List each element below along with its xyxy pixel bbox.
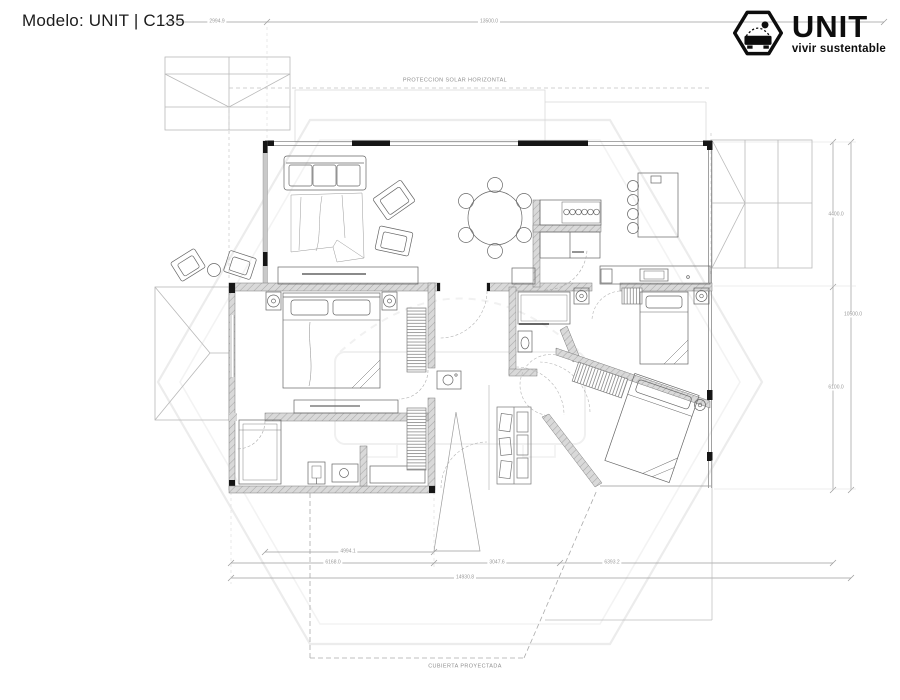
shower	[518, 292, 570, 324]
tall-cabinet	[512, 268, 535, 284]
unit-logo: UNIT vivir sustentable	[732, 10, 886, 56]
dining-area	[459, 178, 532, 259]
sink-counter	[600, 266, 710, 284]
leaf-icon	[761, 21, 768, 28]
bed-double	[283, 293, 380, 388]
kitchen	[512, 173, 710, 290]
page-title: Modelo: UNIT | C135	[22, 11, 185, 31]
kitchen-cabinets	[540, 232, 600, 258]
hall-door-arcs	[440, 291, 620, 488]
wardrobe	[622, 288, 642, 304]
vanity-sink	[437, 371, 461, 389]
dim-label-right-lower: 6100.0	[826, 386, 845, 391]
projected-roof-outline	[310, 490, 597, 658]
unit-logo-hexagon-icon	[732, 10, 784, 56]
dim-label-bottom-row2-left: 6168.0	[323, 561, 342, 566]
bedroom-3	[520, 348, 712, 487]
dimension-lines	[165, 19, 887, 581]
dim-label-top-span: 13500.0	[478, 20, 500, 25]
lamp	[268, 295, 280, 307]
container-icon	[744, 36, 771, 45]
dining-table	[468, 191, 522, 245]
terrace-left	[170, 248, 256, 281]
logo-brand: UNIT	[792, 11, 886, 42]
dim-label-right-upper: 4400.0	[826, 213, 845, 218]
shower	[239, 420, 281, 484]
dim-label-bottom-row2-mid: 3047.6	[487, 561, 506, 566]
dim-label-bottom-total: 14930.8	[454, 576, 476, 581]
logo-tagline: vivir sustentable	[792, 44, 886, 56]
dim-label-right-total: 10500.0	[842, 313, 864, 318]
sofa	[284, 156, 366, 190]
armchair-1	[373, 180, 416, 221]
floor-plan-sheet: Modelo: UNIT | C135 UNIT vivir sustentab…	[0, 0, 900, 700]
dim-label-bottom-row1: 4994.1	[338, 550, 357, 555]
roof-left-terrace	[155, 287, 229, 420]
armchair-2	[375, 226, 413, 257]
arch-icon	[746, 28, 770, 36]
closet	[407, 408, 426, 470]
bedroom-2	[574, 288, 709, 364]
lamp	[576, 291, 587, 302]
dim-label-top-left: 2994.9	[207, 20, 226, 25]
roof-top-left	[165, 57, 290, 280]
outdoor-sofa	[497, 407, 531, 484]
rug	[291, 193, 364, 262]
roof-right	[711, 133, 812, 275]
side-table	[208, 264, 221, 277]
bathroom-2	[437, 287, 580, 389]
lamp	[384, 295, 396, 307]
tv-console	[278, 267, 418, 284]
wardrobe	[407, 308, 426, 372]
dim-label-bottom-row2-right: 6393.2	[602, 561, 621, 566]
entry-path-marker	[434, 412, 480, 551]
dimension-reference-lines	[231, 27, 856, 584]
kitchen-island	[628, 173, 679, 237]
bed-single	[640, 292, 688, 364]
watermark-hexagon	[158, 120, 762, 644]
cooktop-counter	[540, 200, 601, 225]
bathroom-sink	[332, 464, 358, 482]
solar-protection-label: PROTECCION SOLAR HORIZONTAL	[401, 78, 509, 84]
lamp	[696, 291, 707, 302]
floor-plan-drawing	[0, 0, 900, 700]
projected-roof-label: CUBIERTA PROYECTADA	[426, 664, 504, 670]
